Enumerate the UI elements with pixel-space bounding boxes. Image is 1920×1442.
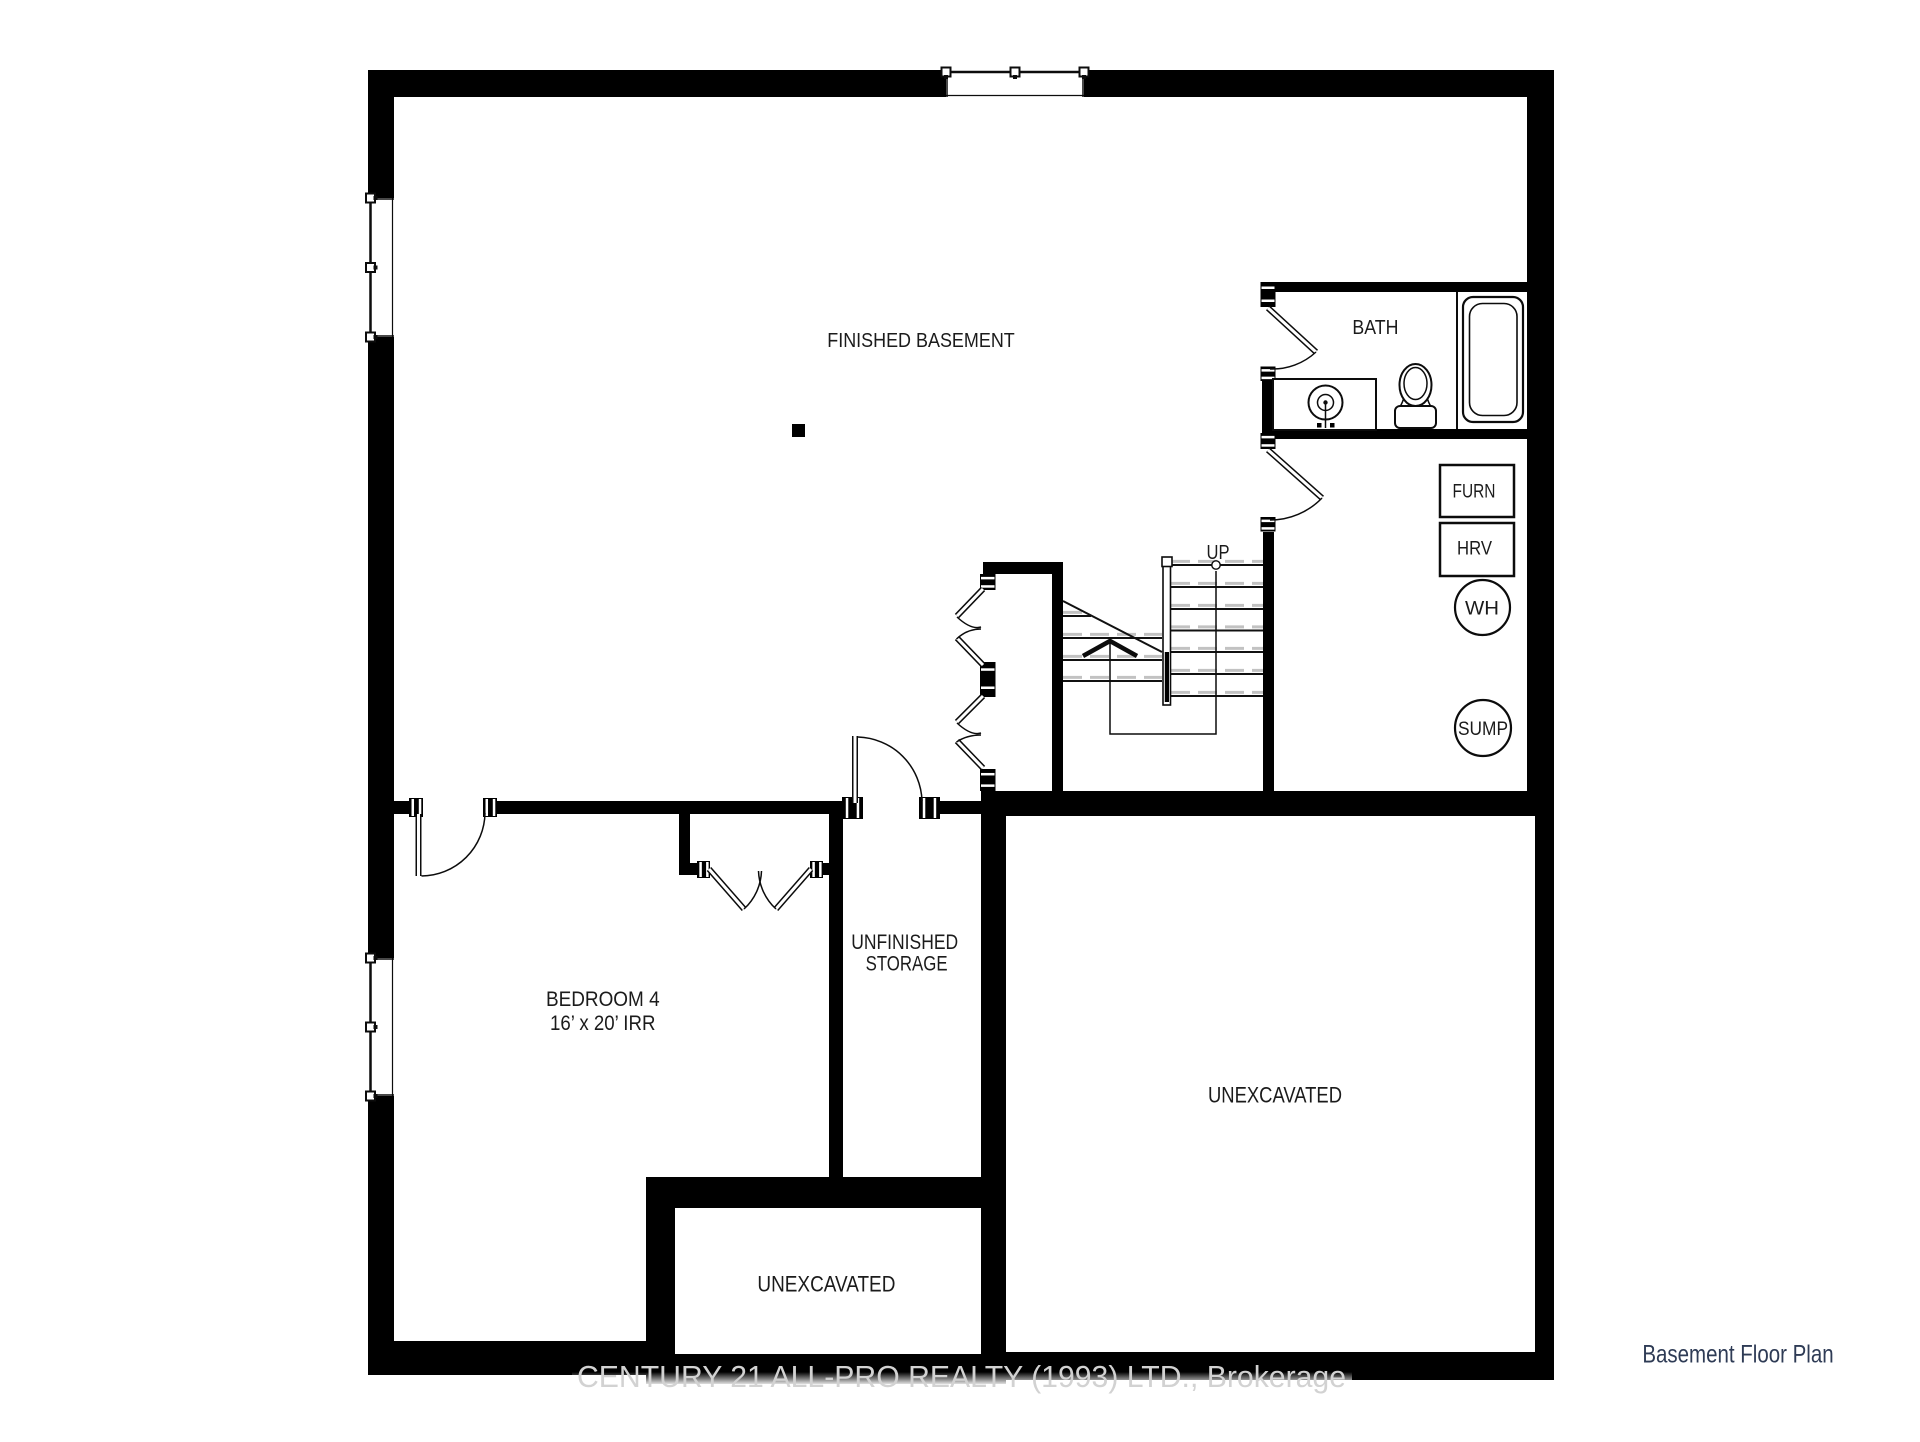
svg-text:UNEXCAVATED: UNEXCAVATED (1208, 1083, 1342, 1108)
svg-text:BEDROOM 4: BEDROOM 4 (546, 988, 660, 1011)
svg-text:WH: WH (1465, 599, 1499, 620)
svg-text:Basement Floor Plan: Basement Floor Plan (1642, 1341, 1833, 1369)
svg-text:UNEXCAVATED: UNEXCAVATED (757, 1271, 895, 1296)
svg-text:HRV: HRV (1457, 539, 1492, 560)
svg-text:UNFINISHED: UNFINISHED (851, 931, 958, 954)
svg-text:FINISHED BASEMENT: FINISHED BASEMENT (827, 329, 1015, 352)
svg-text:SUMP: SUMP (1458, 719, 1508, 740)
svg-text:BATH: BATH (1352, 317, 1398, 339)
svg-text:CENTURY 21 ALL-PRO REALTY (199: CENTURY 21 ALL-PRO REALTY (1993) LTD., B… (577, 1360, 1346, 1394)
svg-text:16’ x 20’ IRR: 16’ x 20’ IRR (550, 1012, 656, 1035)
svg-text:STORAGE: STORAGE (866, 953, 948, 976)
svg-text:FURN: FURN (1453, 482, 1496, 503)
svg-text:UP: UP (1207, 542, 1230, 564)
